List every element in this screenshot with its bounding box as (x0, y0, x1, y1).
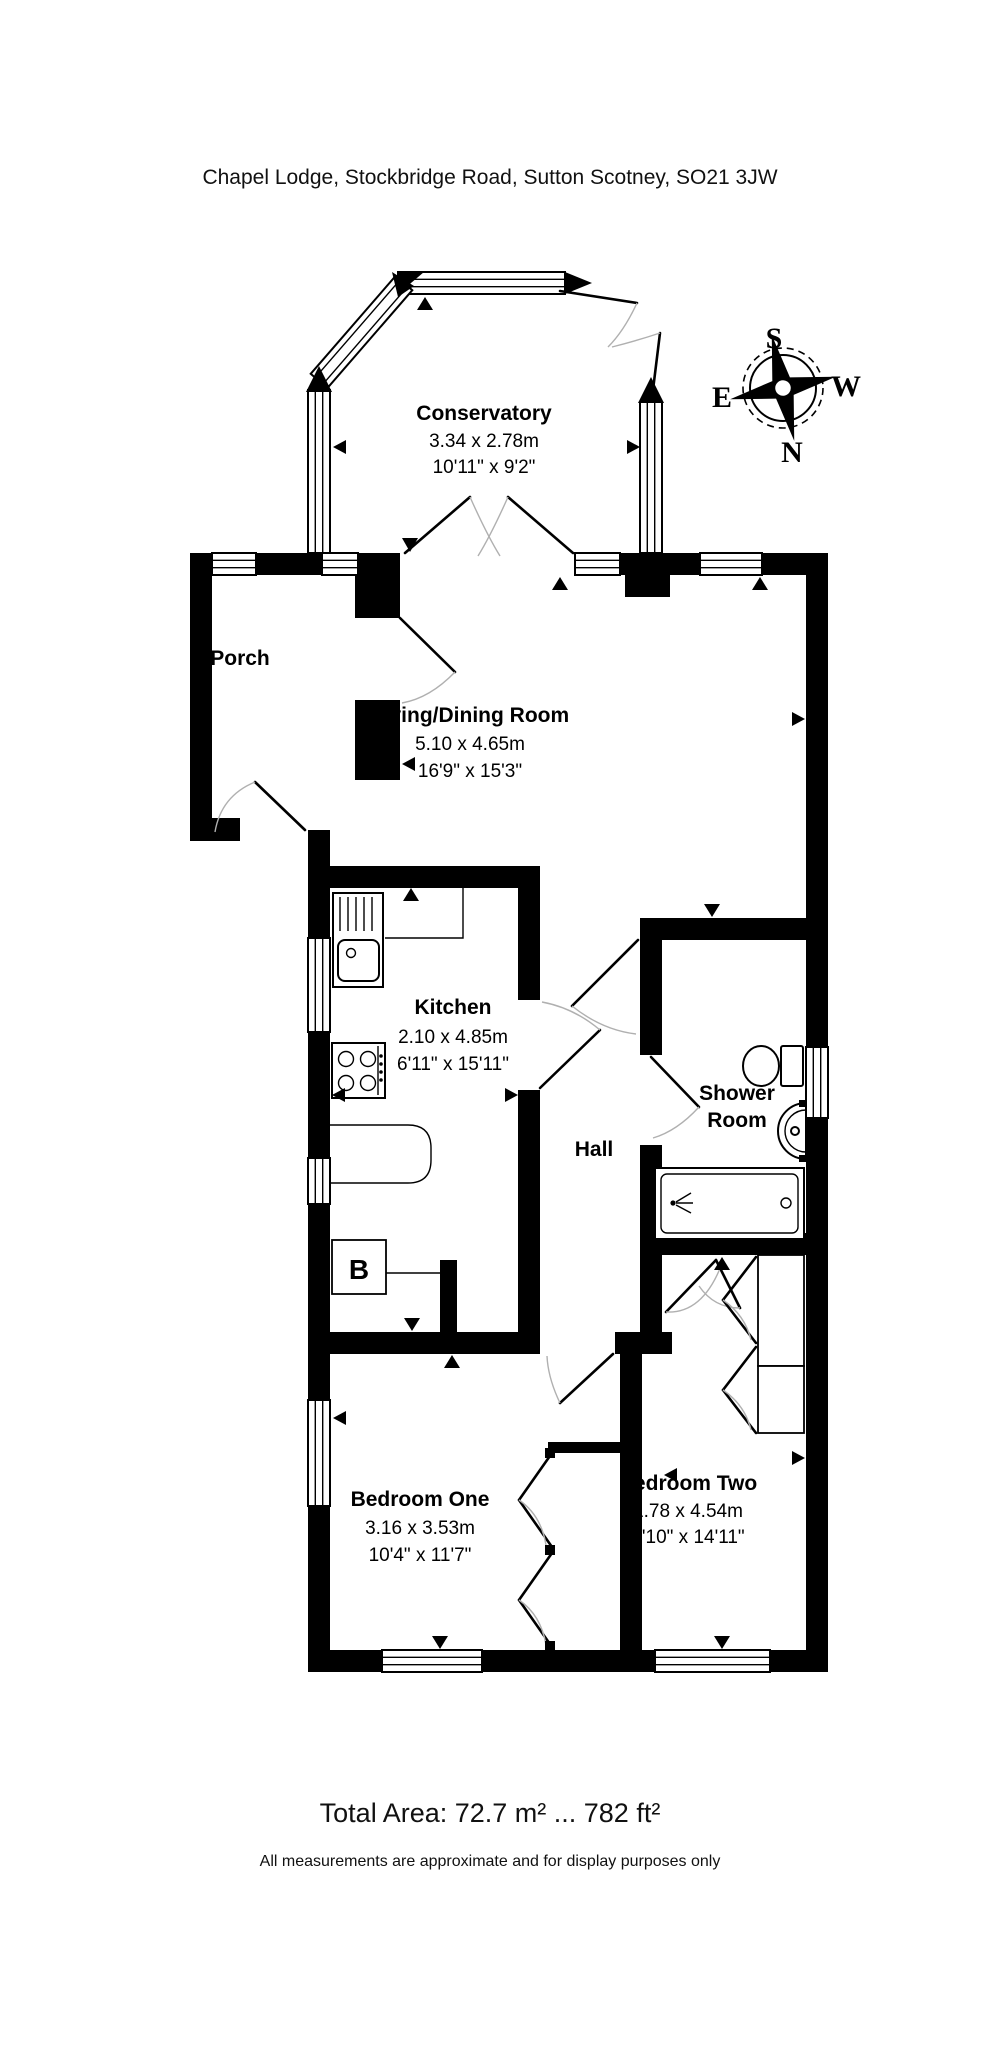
compass-north-label: N (781, 436, 803, 469)
kitchen-window-upper (308, 938, 330, 1032)
svg-text:Conservatory: Conservatory (416, 402, 552, 425)
compass-east-label: E (712, 381, 732, 414)
boiler-label: B (349, 1254, 369, 1285)
kitchen-hob (332, 1043, 385, 1098)
svg-text:Room: Room (707, 1109, 767, 1132)
svg-text:Kitchen: Kitchen (414, 996, 491, 1019)
svg-text:16'9" x 15'3": 16'9" x 15'3" (418, 761, 522, 782)
kitchen-label: Kitchen 2.10 x 4.85m 6'11" x 15'11" (397, 996, 509, 1075)
bedroom-two-window (655, 1650, 770, 1672)
total-area-text: Total Area: 72.7 m² ... 782 ft² (320, 1798, 661, 1828)
bedroom-two-label: Bedroom Two 1.78 x 4.54m 5'10" x 14'11" (619, 1472, 757, 1548)
kitchen-sink (333, 893, 383, 987)
svg-text:1.78 x 4.54m: 1.78 x 4.54m (633, 1501, 743, 1522)
svg-text:5'10" x 14'11": 5'10" x 14'11" (631, 1527, 744, 1548)
bedroom-one-door (547, 1354, 613, 1403)
kitchen-window-lower (308, 1158, 330, 1204)
conservatory-double-doors (405, 497, 573, 556)
porch-window (212, 553, 256, 575)
svg-text:2.10 x 4.85m: 2.10 x 4.85m (398, 1027, 508, 1048)
svg-text:10'11" x 9'2": 10'11" x 9'2" (433, 457, 536, 478)
kitchen-counter-top (385, 888, 463, 938)
svg-text:Bedroom Two: Bedroom Two (619, 1472, 757, 1495)
compass-rose-icon: S N E W (712, 322, 861, 469)
bedroom-one-label: Bedroom One 3.16 x 3.53m 10'4" x 11'7" (351, 1488, 490, 1566)
hall-label: Hall (575, 1138, 614, 1161)
shower-room-door (651, 1057, 699, 1138)
porch-label: Porch (210, 647, 270, 670)
svg-text:6'11" x 15'11": 6'11" x 15'11" (397, 1054, 509, 1075)
svg-text:Bedroom One: Bedroom One (351, 1488, 490, 1511)
front-window-left (322, 553, 358, 575)
shower-bath (655, 1168, 804, 1239)
bedroom-one-window (382, 1650, 482, 1672)
living-hall-door (572, 940, 638, 1034)
porch-living-door (400, 618, 455, 703)
room-labels: Conservatory 3.34 x 2.78m 10'11" x 9'2" … (210, 402, 775, 1566)
shower-room-window (806, 1047, 828, 1118)
compass-south-label: S (766, 322, 783, 355)
conservatory-corner-door (560, 291, 660, 398)
shower-room-fixtures (655, 1046, 806, 1239)
living-dining-label: Living/Dining Room 5.10 x 4.65m 16'9" x … (371, 704, 569, 782)
basin (778, 1100, 806, 1162)
svg-text:3.34 x 2.78m: 3.34 x 2.78m (429, 431, 539, 452)
svg-text:3.16 x 3.53m: 3.16 x 3.53m (365, 1518, 475, 1539)
kitchen-hall-door (540, 1002, 600, 1088)
chimney-breast (625, 575, 670, 597)
bedroom-two-wardrobes (723, 1255, 804, 1433)
svg-text:Shower: Shower (699, 1082, 775, 1105)
kitchen-fixtures: B (330, 888, 463, 1294)
toilet (743, 1046, 803, 1086)
compass-west-label: W (831, 370, 861, 403)
bedroom-one-side-window (308, 1400, 330, 1506)
living-window-right (700, 553, 762, 575)
kitchen-counter-lower (330, 1125, 431, 1183)
svg-text:5.10 x 4.65m: 5.10 x 4.65m (415, 734, 525, 755)
living-window-left (575, 553, 620, 575)
boiler-cupboard: B (332, 1240, 440, 1294)
shower-room-label: Shower Room (699, 1082, 775, 1132)
svg-text:Living/Dining Room: Living/Dining Room (371, 704, 569, 727)
bedroom-one-closet-bifold-doors (519, 1448, 555, 1651)
conservatory-label: Conservatory 3.34 x 2.78m 10'11" x 9'2" (416, 402, 552, 478)
page-title: Chapel Lodge, Stockbridge Road, Sutton S… (202, 166, 777, 189)
disclaimer-text: All measurements are approximate and for… (260, 1853, 721, 1870)
floor-plan: Chapel Lodge, Stockbridge Road, Sutton S… (0, 0, 996, 2048)
svg-text:10'4" x 11'7": 10'4" x 11'7" (369, 1545, 472, 1566)
